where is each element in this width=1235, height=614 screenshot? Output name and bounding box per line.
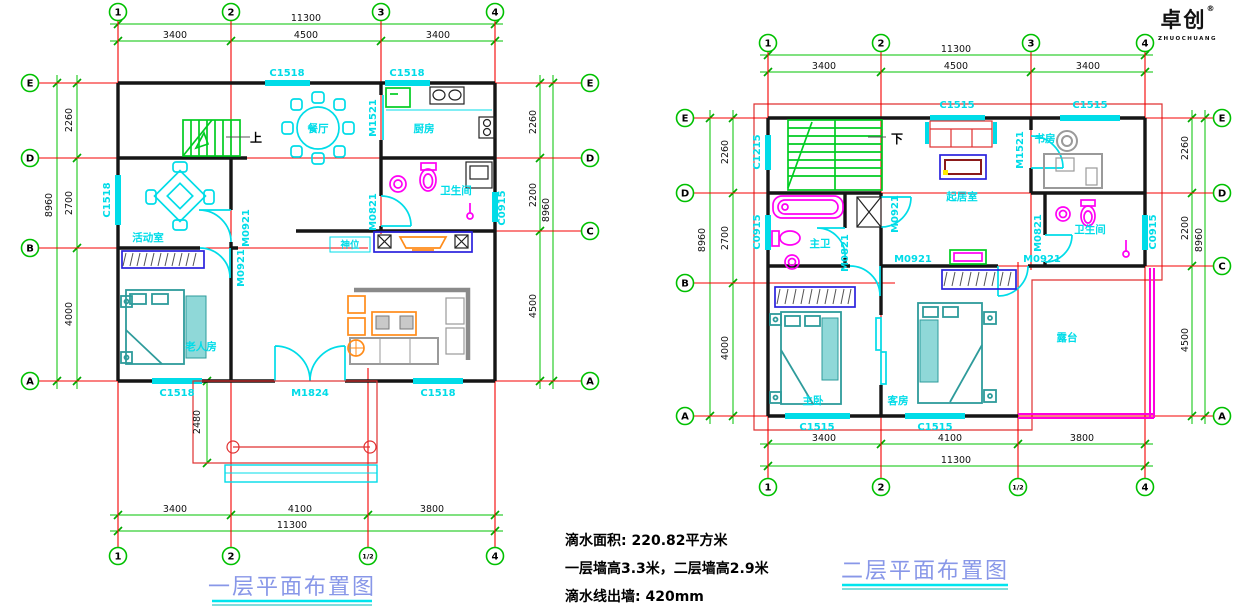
- logo-subtitle: ZHUOCHUANG: [1158, 36, 1217, 42]
- dim-seg: 4500: [294, 30, 318, 41]
- plan1-grid-bubbles: 1 2 3 4 1 2 1/2 4 E D B A E D C A: [22, 4, 599, 565]
- window-label: C1515: [799, 422, 834, 433]
- grid-label: C: [586, 227, 593, 238]
- grid-label: 2: [878, 39, 885, 50]
- dim-seg: 3400: [812, 61, 836, 72]
- door-label: M0921: [890, 195, 901, 233]
- grid-label: 1: [115, 552, 122, 563]
- note-line: 一层墙高3.3米，二层墙高2.9米: [565, 555, 825, 583]
- dim-seg: 3400: [812, 433, 836, 444]
- dim-seg: 2700: [64, 191, 75, 215]
- dim-seg: 4000: [720, 336, 731, 360]
- room-label-shrine: 神位: [340, 239, 360, 251]
- grid-label: 2: [228, 552, 235, 563]
- door-label: M0921: [241, 209, 252, 247]
- dim-total-left: 8960: [697, 228, 708, 252]
- grid-label: D: [1218, 189, 1226, 200]
- room-label-living: 起居室: [945, 190, 978, 203]
- guest-bedroom-furniture: [918, 270, 1016, 403]
- dim-seg: 2200: [1180, 216, 1191, 240]
- window-label: C1515: [939, 100, 974, 111]
- stair-direction: 下: [891, 132, 903, 146]
- kitchen-fixtures: [386, 87, 495, 138]
- door-label: M0821: [368, 193, 379, 231]
- grid-label: E: [1219, 114, 1226, 125]
- door-label: M0921: [1023, 254, 1061, 265]
- cad-drawing: 1 2 3 4 1 2 1/2 4 E D B A E D C A 11300 …: [0, 0, 1235, 614]
- dim-total-right: 8960: [1194, 228, 1205, 252]
- plan2-title: 二层平面布置图: [841, 559, 1009, 584]
- room-label-guest: 客房: [887, 394, 909, 407]
- dim-seg: 2260: [528, 110, 539, 134]
- company-logo: 卓创® ZHUOCHUANG: [1158, 4, 1217, 42]
- window-label: C0915: [752, 214, 763, 249]
- dim-seg: 3400: [163, 30, 187, 41]
- dim-seg: 2200: [528, 183, 539, 207]
- room-label-mbath: 主卫: [810, 237, 831, 250]
- plan1-dimension-text: 11300 3400 4500 3400 3400 4100 3800 1130…: [44, 13, 552, 531]
- grid-label: 4: [1142, 483, 1149, 494]
- floor-plan-1: 1 2 3 4 1 2 1/2 4 E D B A E D C A 11300 …: [0, 0, 620, 614]
- grid-label: 3: [1028, 39, 1035, 50]
- dim-total-left: 8960: [44, 193, 55, 217]
- dim-seg: 2700: [720, 226, 731, 250]
- grid-label: C: [1218, 262, 1225, 273]
- plan1-axis-lines: [30, 12, 590, 556]
- grid-label: 4: [492, 8, 499, 19]
- dim-total-top: 11300: [941, 44, 971, 55]
- master-bedroom-furniture: [770, 287, 855, 404]
- dim-seg: 3400: [1076, 61, 1100, 72]
- door-label: M0921: [894, 254, 932, 265]
- grid-label: A: [1218, 412, 1226, 423]
- note-line: 滴水面积: 220.82平方米: [565, 527, 825, 555]
- dim-total-top: 11300: [291, 13, 321, 24]
- dim-seg: 2260: [720, 140, 731, 164]
- window-label: C1515: [1072, 100, 1107, 111]
- dim-seg: 4500: [1180, 328, 1191, 352]
- window-label: C1518: [159, 388, 194, 399]
- grid-label: 1: [765, 39, 772, 50]
- window-label: C0915: [497, 190, 508, 225]
- grid-label: 2: [228, 8, 235, 19]
- door-label: M0821: [840, 234, 851, 272]
- logo-name: 卓创: [1161, 8, 1207, 32]
- dim-seg: 3400: [426, 30, 450, 41]
- grid-label: 4: [492, 552, 499, 563]
- plan2-living-furniture: [925, 121, 997, 179]
- room-label-elder: 老人房: [184, 340, 217, 353]
- window-label: C1518: [269, 68, 304, 79]
- grid-label: A: [681, 412, 689, 423]
- dim-total-bottom: 11300: [941, 455, 971, 466]
- grid-label: E: [27, 79, 34, 90]
- window-label: C1518: [420, 388, 455, 399]
- dim-ticks: [53, 20, 557, 535]
- door-label: M1521: [1015, 131, 1026, 169]
- registered-mark: ®: [1207, 4, 1215, 13]
- window-label: C0915: [1148, 214, 1159, 249]
- grid-label: 3: [378, 8, 385, 19]
- room-label-activity: 活动室: [132, 231, 164, 244]
- grid-label: 1/2: [362, 553, 373, 561]
- stair-direction: 上: [250, 130, 262, 145]
- dim-seg: 4100: [288, 504, 312, 515]
- door-label: M1521: [368, 99, 379, 137]
- dim-seg: 4100: [938, 433, 962, 444]
- door-label: M0821: [1033, 214, 1044, 252]
- grid-label: D: [26, 154, 34, 165]
- grid-label: 1: [765, 483, 772, 494]
- room-label-master: 主卧: [803, 394, 824, 407]
- window-label: C1518: [389, 68, 424, 79]
- window-label: C1515: [917, 422, 952, 433]
- dim-seg: 3800: [1070, 433, 1094, 444]
- drawing-notes: 滴水面积: 220.82平方米 一层墙高3.3米，二层墙高2.9米 滴水线出墙:…: [565, 527, 825, 611]
- room-label-study: 书房: [1035, 132, 1056, 145]
- plan1-stairs: [183, 120, 240, 156]
- plan1-title: 一层平面布置图: [208, 575, 376, 600]
- note-line: 滴水线出墙: 420mm: [565, 583, 825, 611]
- grid-label: A: [586, 377, 594, 388]
- grid-label: D: [586, 154, 594, 165]
- grid-label: E: [682, 114, 689, 125]
- grid-label: E: [587, 79, 594, 90]
- room-label-bath: 卫生间: [440, 184, 472, 197]
- dim-seg: 4500: [944, 61, 968, 72]
- room-label-dining: 餐厅: [307, 122, 329, 135]
- grid-label: 1: [115, 8, 122, 19]
- grid-label: 1/2: [1012, 484, 1023, 492]
- porch: [193, 381, 377, 482]
- room-label-terrace: 露台: [1057, 331, 1078, 344]
- grid-label: B: [681, 279, 689, 290]
- activity-table: [146, 162, 214, 230]
- plan1-dimension-lines: [50, 16, 560, 538]
- hall-cabinet: [950, 250, 986, 264]
- dim-seg: 4000: [64, 302, 75, 326]
- grid-label: 2: [878, 483, 885, 494]
- grid-label: B: [26, 244, 34, 255]
- room-label-bath: 卫生间: [1074, 223, 1106, 236]
- dim-seg: 4500: [528, 294, 539, 318]
- window-label: C1215: [752, 134, 763, 169]
- door-label: M0921: [236, 249, 247, 287]
- terrace-railing: [1018, 268, 1154, 418]
- plan2-stairs: [788, 120, 882, 190]
- closet-shaft: [857, 197, 881, 227]
- grid-label: 4: [1142, 39, 1149, 50]
- dim-seg: 3800: [420, 504, 444, 515]
- living-room-furniture: [348, 290, 468, 364]
- grid-label: D: [681, 189, 689, 200]
- dim-seg: 2260: [1180, 136, 1191, 160]
- room-label-kitchen: 厨房: [414, 122, 435, 135]
- window-label: C1518: [102, 182, 113, 217]
- door-label: M1824: [291, 388, 329, 399]
- dim-seg: 3400: [163, 504, 187, 515]
- dim-total-bottom: 11300: [277, 520, 307, 531]
- grid-label: A: [26, 377, 34, 388]
- dim-porch: 2480: [192, 410, 203, 434]
- floor-plan-2: 1 2 3 4 1 2 1/2 4 E D B A E D C A 11300 …: [620, 0, 1235, 614]
- dim-total-right: 8960: [541, 198, 552, 222]
- dim-seg: 2260: [64, 108, 75, 132]
